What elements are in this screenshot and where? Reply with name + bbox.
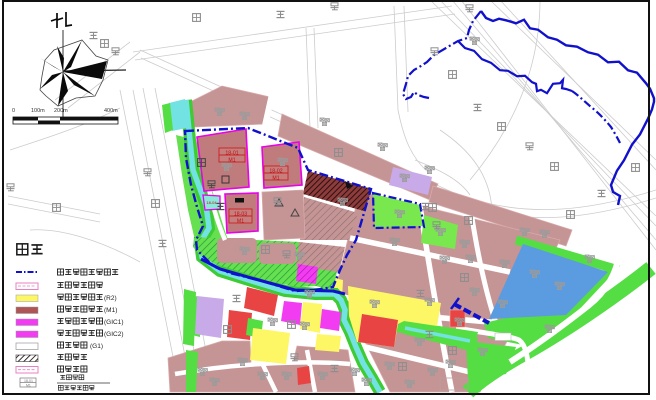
svg-text:18-02: 18-02 [269,169,282,175]
svg-text:M1: M1 [228,158,235,164]
svg-text:400m: 400m [104,108,118,114]
svg-text:18-01: 18-01 [24,379,33,383]
svg-text:M1: M1 [272,176,279,182]
svg-text:(GIC1): (GIC1) [104,319,124,326]
svg-text:M1: M1 [26,384,31,388]
svg-text:100m: 100m [31,108,45,114]
svg-text:0: 0 [12,108,15,114]
svg-text:18-01: 18-01 [225,151,238,157]
svg-text:(GIC2): (GIC2) [104,331,124,338]
svg-text:(R2): (R2) [104,295,117,302]
svg-text:M1: M1 [237,219,244,225]
svg-text:18-03: 18-03 [234,212,247,218]
svg-text:(G1): (G1) [90,343,103,350]
svg-text:(M1): (M1) [104,307,117,314]
svg-text:18-04: 18-04 [206,200,217,205]
svg-text:200m: 200m [54,108,68,114]
